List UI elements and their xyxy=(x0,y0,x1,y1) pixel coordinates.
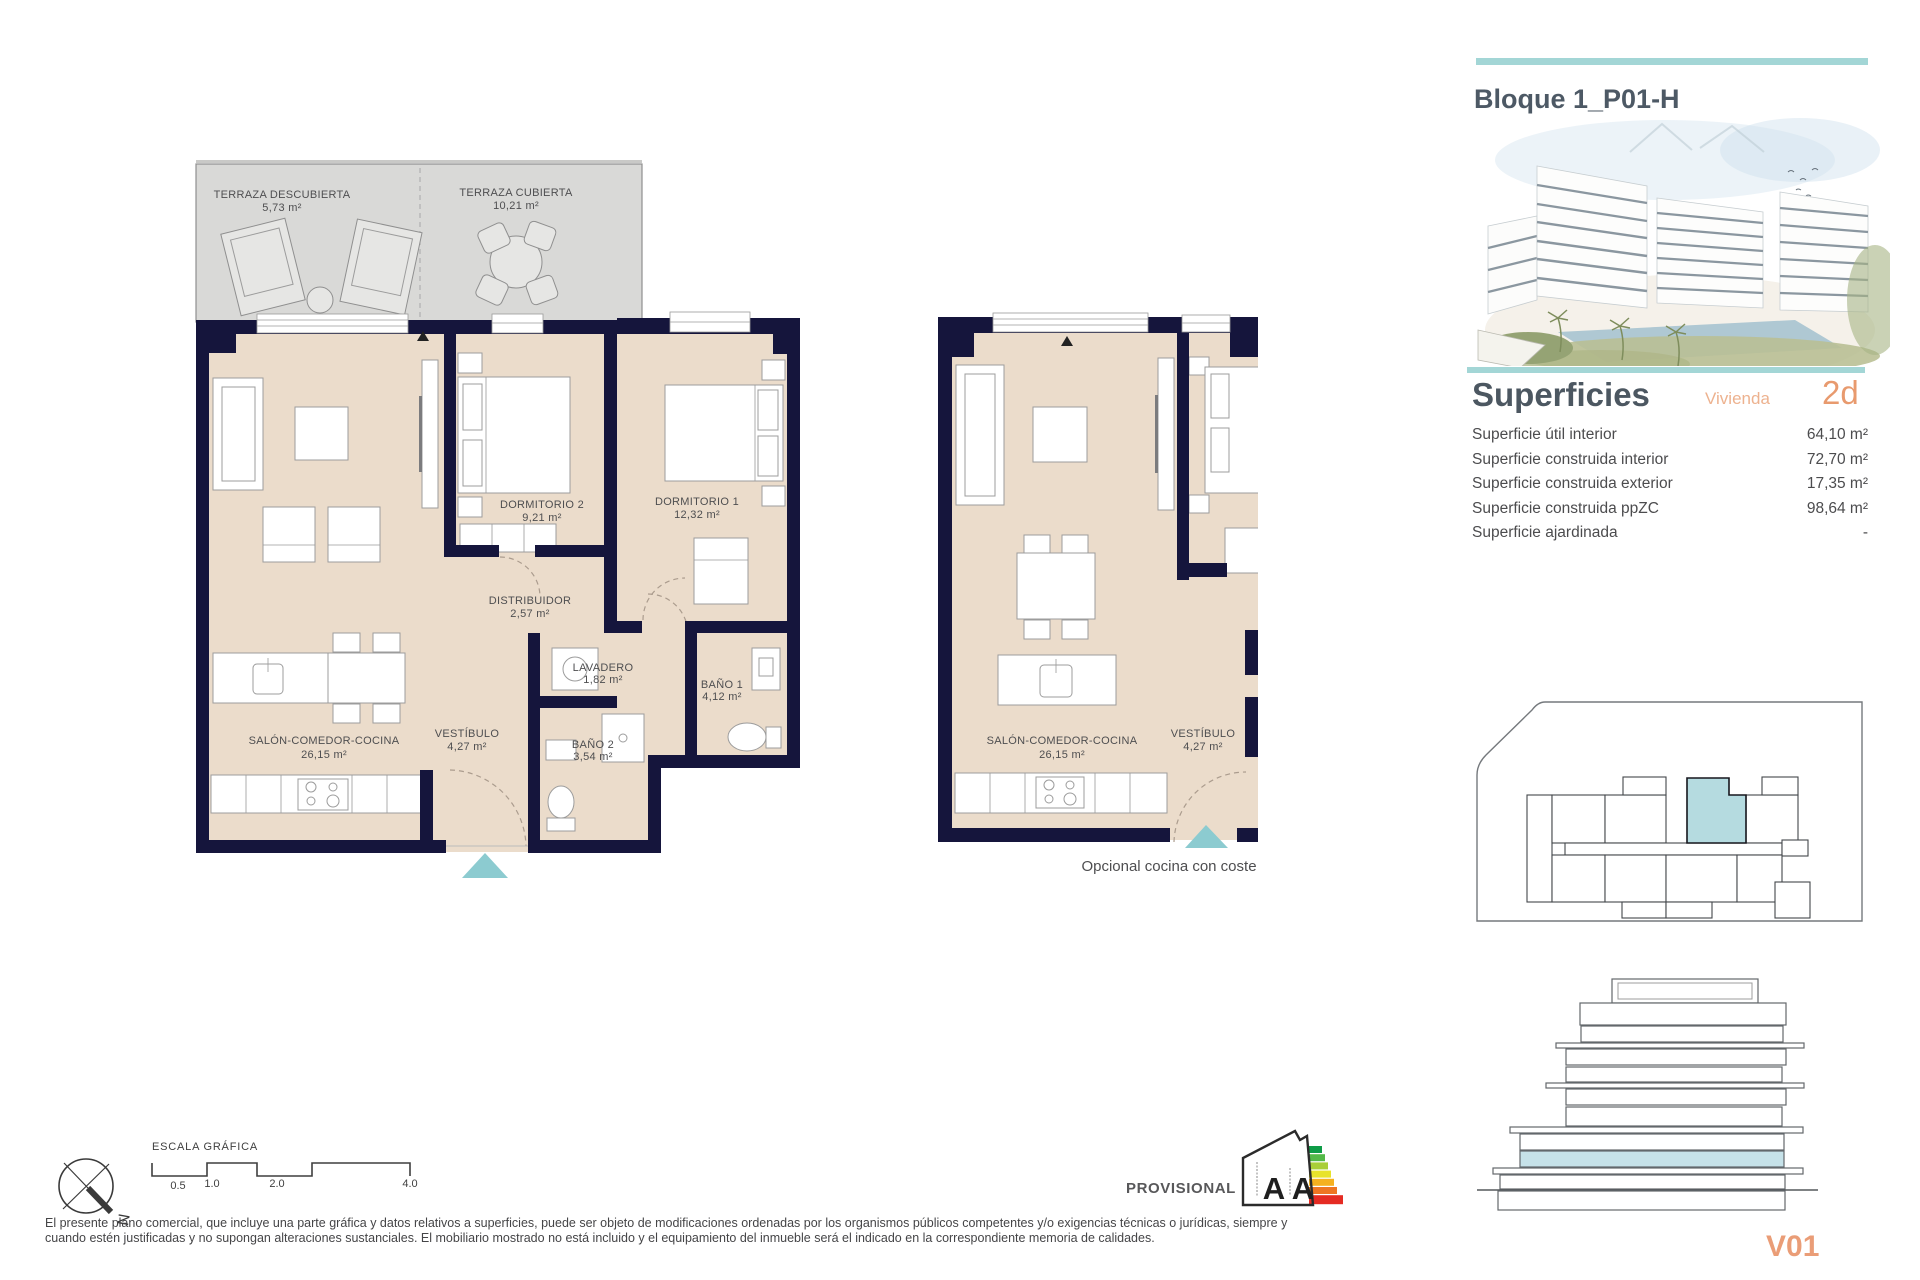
accent-bar-top xyxy=(1476,58,1868,65)
render-scene xyxy=(1478,118,1890,366)
building-elevation xyxy=(1470,962,1830,1214)
room-area: 10,21 m² xyxy=(493,200,539,212)
room-label: TERRAZA CUBIERTA xyxy=(459,187,573,199)
version-label: V01 xyxy=(1766,1230,1819,1264)
table-row: Superficie construida exterior 17,35 m² xyxy=(1472,475,1868,500)
kitchen-island xyxy=(213,653,328,703)
terrace: TERRAZA DESCUBIERTA 5,73 m² TERRAZA CUBI… xyxy=(196,160,642,322)
main-floor-plan: TERRAZA DESCUBIERTA 5,73 m² TERRAZA CUBI… xyxy=(150,118,850,888)
superficies-header: Superficies Vivienda 2d xyxy=(1467,376,1867,414)
scale-bar: ESCALA GRÁFICA 0.5 1.0 2.0 4.0 xyxy=(152,1140,418,1192)
room-label: SALÓN-COMEDOR-COCINA xyxy=(249,734,400,747)
row-label: Superficie ajardinada xyxy=(1472,524,1618,549)
page-title: Bloque 1_P01-H xyxy=(1474,84,1680,115)
optional-kitchen-plan: SALÓN-COMEDOR-COCINA 26,15 m² VESTÍBULO … xyxy=(938,310,1258,885)
tv-unit xyxy=(422,360,438,508)
superficies-table: Superficie útil interior 64,10 m² Superf… xyxy=(1472,426,1868,549)
room-area: 1,82 m² xyxy=(583,674,622,686)
room-area: 26,15 m² xyxy=(301,749,347,761)
superficies-title: Superficies xyxy=(1472,376,1650,414)
room-label: LAVADERO xyxy=(573,662,634,674)
building-center xyxy=(1657,198,1763,308)
vivienda-code: 2d xyxy=(1822,374,1859,412)
wardrobe xyxy=(694,538,748,604)
room-area: 5,73 m² xyxy=(262,202,301,214)
provisional-label: PROVISIONAL xyxy=(1126,1180,1236,1197)
kitchen-counter xyxy=(955,773,1167,813)
room-label: DORMITORIO 2 xyxy=(500,499,584,511)
room-area: 4,27 m² xyxy=(447,741,486,753)
optional-plan-caption: Opcional cocina con coste xyxy=(1081,858,1256,875)
dining-table xyxy=(1017,553,1095,619)
energy-letter: A xyxy=(1292,1171,1314,1206)
room-label: SALÓN-COMEDOR-COCINA xyxy=(987,734,1138,747)
disclaimer-line1: El presente plano comercial, que incluye… xyxy=(45,1216,1287,1231)
building-render xyxy=(1470,118,1890,366)
highlighted-floor xyxy=(1520,1151,1784,1167)
room-area: 26,15 m² xyxy=(1039,749,1085,761)
row-label: Superficie construida exterior xyxy=(1472,475,1673,500)
row-label: Superficie construida ppZC xyxy=(1472,500,1659,525)
scale-tick: 1.0 xyxy=(204,1178,219,1190)
kitchen-counter xyxy=(211,775,422,813)
room-area: 2,57 m² xyxy=(510,608,549,620)
plan-sheet: TERRAZA DESCUBIERTA 5,73 m² TERRAZA CUBI… xyxy=(0,0,1920,1280)
row-value: - xyxy=(1863,524,1868,549)
disclaimer: El presente plano comercial, que incluye… xyxy=(45,1216,1287,1246)
elevation-floors xyxy=(1477,979,1818,1210)
row-value: 64,10 m² xyxy=(1807,426,1868,451)
table-row: Superficie construida ppZC 98,64 m² xyxy=(1472,500,1868,525)
windows xyxy=(993,313,1230,332)
room-label: BAÑO 1 xyxy=(701,678,743,691)
table-row: Superficie construida interior 72,70 m² xyxy=(1472,451,1868,476)
room-label: TERRAZA DESCUBIERTA xyxy=(214,189,351,201)
accent-bar-superficies xyxy=(1467,367,1865,373)
scale-title: ESCALA GRÁFICA xyxy=(152,1140,258,1153)
building-left xyxy=(1488,166,1647,314)
energy-letter: A xyxy=(1263,1171,1285,1206)
bed-fragment xyxy=(1205,367,1258,493)
table-row: Superficie ajardinada - xyxy=(1472,524,1868,549)
table-row: Superficie útil interior 64,10 m² xyxy=(1472,426,1868,451)
row-value: 98,64 m² xyxy=(1807,500,1868,525)
site-key-plan xyxy=(1470,690,1870,930)
scale-tick: 4.0 xyxy=(402,1178,417,1190)
row-value: 72,70 m² xyxy=(1807,451,1868,476)
row-label: Superficie construida interior xyxy=(1472,451,1668,476)
row-label: Superficie útil interior xyxy=(1472,426,1617,451)
scale-tick: 2.0 xyxy=(269,1178,284,1190)
disclaimer-line2: cuando estén justificadas y no supongan … xyxy=(45,1231,1287,1246)
room-area: 4,27 m² xyxy=(1183,741,1222,753)
room-area: 12,32 m² xyxy=(674,509,720,521)
room-label: DISTRIBUIDOR xyxy=(489,595,571,607)
room-label: BAÑO 2 xyxy=(572,738,614,751)
room-area: 4,12 m² xyxy=(702,691,741,703)
scale-tick: 0.5 xyxy=(170,1180,185,1192)
footer-marks: N ESCALA GRÁFICA 0.5 1.0 2.0 4.0 xyxy=(40,1125,460,1225)
coffee-table xyxy=(295,407,348,460)
room-area: 3,54 m² xyxy=(573,751,612,763)
room-label: VESTÍBULO xyxy=(435,727,500,740)
energy-rating-logo: A A xyxy=(1236,1126,1348,1212)
room-area: 9,21 m² xyxy=(522,512,561,524)
room-label: VESTÍBULO xyxy=(1171,727,1236,740)
room-label: DORMITORIO 1 xyxy=(655,496,739,508)
dining-table xyxy=(328,653,405,703)
row-value: 17,35 m² xyxy=(1807,475,1868,500)
bed xyxy=(665,385,783,481)
entrance-arrow xyxy=(462,853,508,878)
bed xyxy=(458,377,570,493)
vivienda-label: Vivienda xyxy=(1705,389,1770,409)
